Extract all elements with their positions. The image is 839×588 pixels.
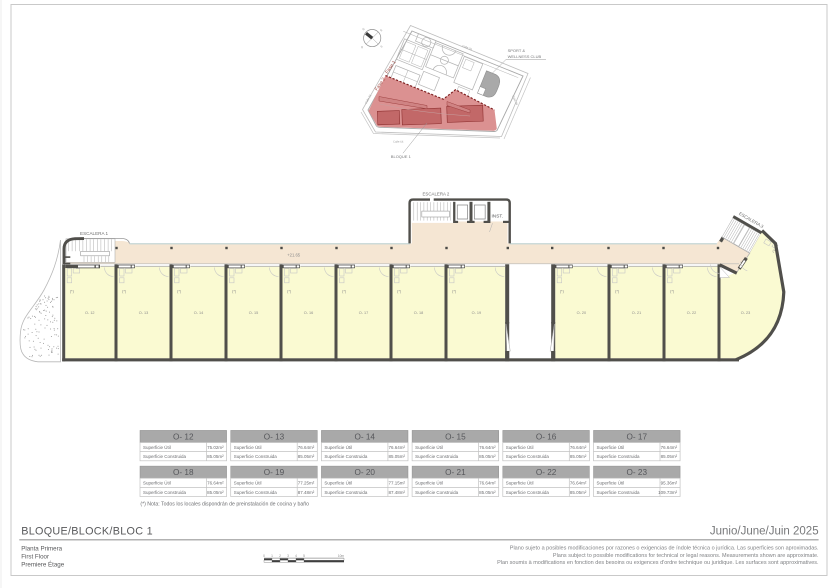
svg-text:Superficie Útil: Superficie Útil <box>324 480 352 486</box>
svg-text:76.64m²: 76.64m² <box>570 481 587 486</box>
svg-text:85.05m²: 85.05m² <box>479 454 496 459</box>
svg-text:E: E <box>379 28 383 32</box>
svg-text:(*): (*) <box>70 289 75 294</box>
svg-text:(*): (*) <box>287 289 292 294</box>
svg-text:85.05m²: 85.05m² <box>298 454 315 459</box>
svg-text:O- 18: O- 18 <box>414 311 424 315</box>
svg-text:O- 17: O- 17 <box>627 432 648 441</box>
svg-text:2: 2 <box>279 554 281 558</box>
svg-text:Superficie Útil: Superficie Útil <box>234 444 262 450</box>
svg-text:O- 15: O- 15 <box>249 311 259 315</box>
svg-text:109.73m²: 109.73m² <box>658 490 678 495</box>
svg-text:(*): (*) <box>232 289 237 294</box>
svg-text:10m: 10m <box>338 554 345 558</box>
svg-text:Superficie Construida: Superficie Construida <box>597 454 641 459</box>
svg-text:First Floor: First Floor <box>21 554 49 561</box>
svg-text:Superficie Construida: Superficie Construida <box>415 454 459 459</box>
svg-text:85.05m²: 85.05m² <box>661 454 678 459</box>
svg-text:Planta Primera: Planta Primera <box>21 546 62 553</box>
svg-text:O- 23: O- 23 <box>741 311 751 315</box>
svg-text:0: 0 <box>263 554 265 558</box>
svg-text:76.64m²: 76.64m² <box>207 481 224 486</box>
svg-text:Superficie Construida: Superficie Construida <box>143 490 187 495</box>
svg-text:Superficie Útil: Superficie Útil <box>597 444 625 450</box>
svg-text:Superficie Útil: Superficie Útil <box>415 444 443 450</box>
svg-text:SPORT &: SPORT & <box>508 48 526 53</box>
svg-text:95.36m²: 95.36m² <box>661 481 678 486</box>
svg-text:3: 3 <box>287 554 289 558</box>
svg-text:(*): (*) <box>670 289 675 294</box>
svg-text:O- 14: O- 14 <box>354 432 375 441</box>
svg-text:85.05m²: 85.05m² <box>479 490 496 495</box>
svg-text:76.64m²: 76.64m² <box>661 445 678 450</box>
svg-text:Superficie Construida: Superficie Construida <box>234 454 278 459</box>
svg-text:76.64m²: 76.64m² <box>479 481 496 486</box>
svg-text:5: 5 <box>303 554 305 558</box>
svg-text:76.64m²: 76.64m² <box>388 445 405 450</box>
svg-text:O- 18: O- 18 <box>173 468 194 477</box>
svg-text:(*): (*) <box>122 289 127 294</box>
svg-text:O- 17: O- 17 <box>359 311 369 315</box>
svg-text:(*): (*) <box>397 289 402 294</box>
svg-text:O- 16: O- 16 <box>304 311 314 315</box>
svg-text:(*): (*) <box>615 289 620 294</box>
svg-text:+21.65: +21.65 <box>287 253 301 258</box>
svg-text:(*) Nota: Todos los locales di: (*) Nota: Todos los locales dispondrán d… <box>140 502 309 508</box>
svg-text:ESCALERA 2: ESCALERA 2 <box>423 192 450 197</box>
svg-text:BLOQUE/BLOCK/BLOC 1: BLOQUE/BLOCK/BLOC 1 <box>21 525 153 537</box>
svg-text:O: O <box>360 44 365 49</box>
svg-text:1: 1 <box>271 554 273 558</box>
svg-text:WELLNESS CLUB: WELLNESS CLUB <box>508 54 542 59</box>
svg-text:Calle 55: Calle 55 <box>393 140 404 144</box>
svg-text:O- 13: O- 13 <box>139 311 149 315</box>
svg-text:O- 19: O- 19 <box>472 311 482 315</box>
svg-text:Superficie Construida: Superficie Construida <box>506 454 550 459</box>
svg-text:Superficie Útil: Superficie Útil <box>143 444 171 450</box>
svg-text:Superficie Útil: Superficie Útil <box>597 480 625 486</box>
svg-text:(*): (*) <box>342 289 347 294</box>
svg-text:76.64m²: 76.64m² <box>479 445 496 450</box>
svg-text:4: 4 <box>295 554 297 558</box>
svg-text:Superficie Útil: Superficie Útil <box>506 480 534 486</box>
svg-text:85.05m²: 85.05m² <box>570 490 587 495</box>
svg-text:Superficie Construida: Superficie Construida <box>324 490 368 495</box>
svg-text:Premiere Étage: Premiere Étage <box>21 562 65 569</box>
svg-text:O- 20: O- 20 <box>577 311 587 315</box>
svg-text:Superficie Útil: Superficie Útil <box>143 480 171 486</box>
svg-text:O- 15: O- 15 <box>445 432 466 441</box>
svg-text:85.05m²: 85.05m² <box>207 490 224 495</box>
svg-text:87.48m²: 87.48m² <box>388 490 405 495</box>
svg-text:Superficie Construida: Superficie Construida <box>597 490 641 495</box>
svg-text:Superficie Construida: Superficie Construida <box>506 490 550 495</box>
svg-text:Superficie Construida: Superficie Construida <box>324 454 368 459</box>
svg-text:O- 21: O- 21 <box>632 311 642 315</box>
svg-text:Superficie Útil: Superficie Útil <box>234 480 262 486</box>
svg-text:O- 12: O- 12 <box>85 311 95 315</box>
svg-text:76.64m²: 76.64m² <box>298 445 315 450</box>
svg-text:O- 13: O- 13 <box>264 432 285 441</box>
svg-text:O- 23: O- 23 <box>627 468 648 477</box>
svg-text:Calle 26: Calle 26 <box>462 44 473 52</box>
svg-text:O- 20: O- 20 <box>354 468 375 477</box>
svg-text:O- 22: O- 22 <box>687 311 697 315</box>
svg-text:Plano sujeto a posibles modifi: Plano sujeto a posibles modificaciones p… <box>510 546 819 552</box>
svg-text:Superficie Útil: Superficie Útil <box>415 480 443 486</box>
svg-text:S: S <box>379 44 383 48</box>
svg-text:(*): (*) <box>177 289 182 294</box>
svg-text:O- 14: O- 14 <box>194 311 204 315</box>
svg-text:Superficie Construida: Superficie Construida <box>143 454 187 459</box>
svg-text:77.15m²: 77.15m² <box>388 481 405 486</box>
svg-text:76.64m²: 76.64m² <box>570 445 587 450</box>
svg-text:75.02m²: 75.02m² <box>207 445 224 450</box>
svg-text:Superficie Útil: Superficie Útil <box>324 444 352 450</box>
svg-text:O- 21: O- 21 <box>445 468 466 477</box>
svg-text:77.25m²: 77.25m² <box>298 481 315 486</box>
svg-text:O- 16: O- 16 <box>536 432 557 441</box>
svg-text:Plan soumis à modifications en: Plan soumis à modifications en fonction … <box>497 560 819 566</box>
svg-text:85.05m²: 85.05m² <box>388 454 405 459</box>
svg-text:85.05m²: 85.05m² <box>570 454 587 459</box>
svg-text:INST.: INST. <box>492 214 503 219</box>
svg-text:BLOQUE 1: BLOQUE 1 <box>391 154 412 159</box>
svg-text:O- 19: O- 19 <box>264 468 285 477</box>
svg-text:(*): (*) <box>452 289 457 294</box>
svg-text:O- 12: O- 12 <box>173 432 194 441</box>
svg-text:Plans subject to possible modi: Plans subject to possible modifications … <box>553 553 819 559</box>
svg-text:(*): (*) <box>560 289 565 294</box>
svg-text:Superficie Útil: Superficie Útil <box>506 444 534 450</box>
svg-text:ESCALERA 1: ESCALERA 1 <box>80 231 109 236</box>
svg-text:Superficie Construida: Superficie Construida <box>234 490 278 495</box>
svg-text:Junio/June/Juin 2025: Junio/June/Juin 2025 <box>710 525 819 537</box>
svg-text:N: N <box>361 27 365 31</box>
svg-text:Superficie Construida: Superficie Construida <box>415 490 459 495</box>
svg-text:87.48m²: 87.48m² <box>298 490 315 495</box>
svg-text:O- 22: O- 22 <box>536 468 557 477</box>
svg-text:85.05m²: 85.05m² <box>207 454 224 459</box>
